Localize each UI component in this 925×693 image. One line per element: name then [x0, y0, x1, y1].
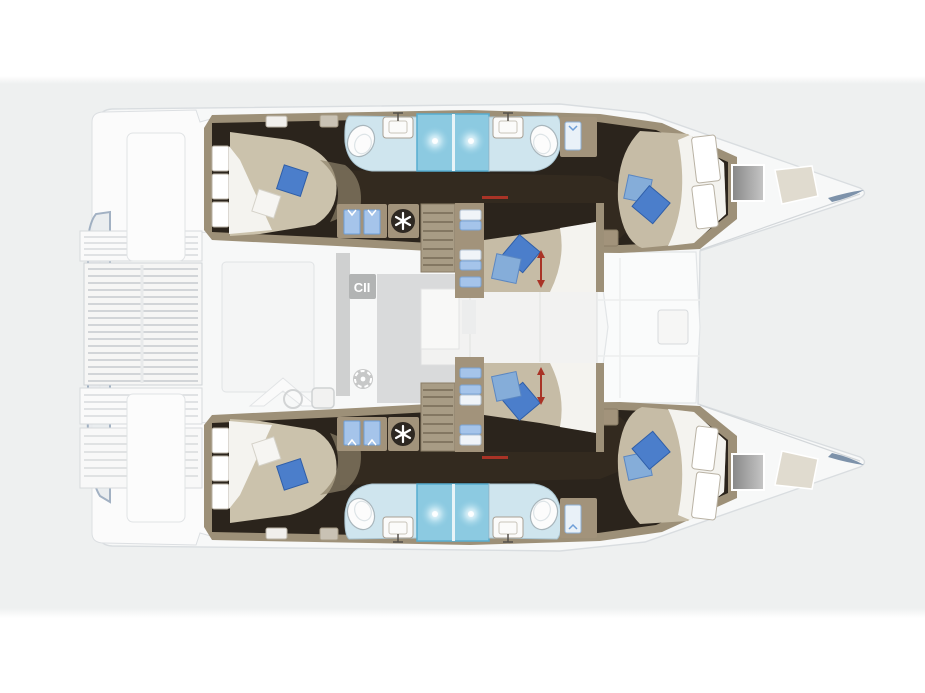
svg-text:CII: CII: [354, 280, 371, 295]
